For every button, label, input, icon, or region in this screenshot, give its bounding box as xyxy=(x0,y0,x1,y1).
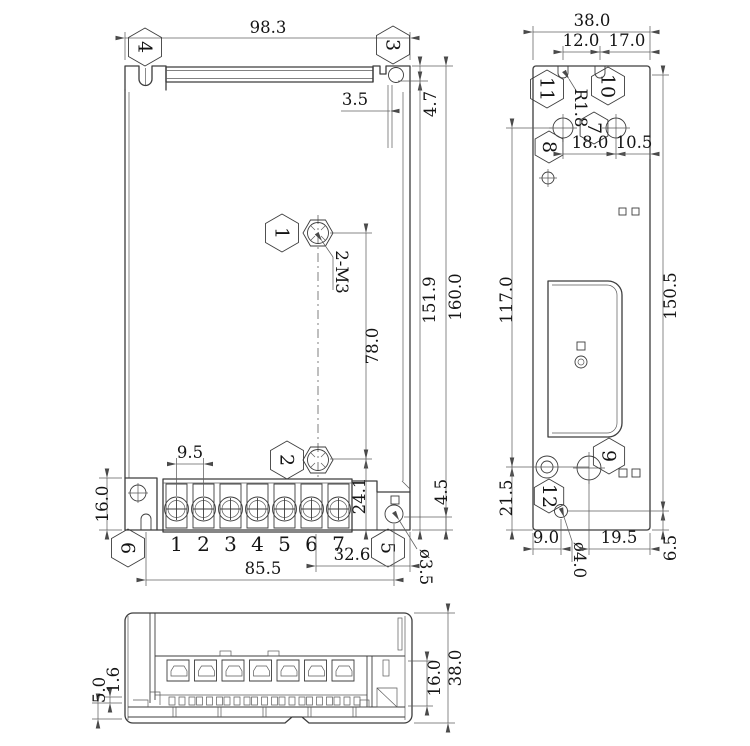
terminal-2: 2 xyxy=(197,532,210,556)
dim-flange-height: 16.0 xyxy=(93,478,122,530)
balloon-9-number: 9 xyxy=(598,450,620,462)
balloon-2-number: 2 xyxy=(276,454,298,466)
dim-text-32-6: 32.6 xyxy=(334,545,371,564)
dim-text-9-5: 9.5 xyxy=(177,443,203,462)
balloon-4-number: 4 xyxy=(134,41,156,53)
dim-text-78: 78.0 xyxy=(363,328,382,365)
dim-text-151-9: 151.9 xyxy=(420,276,439,323)
thread-callout: 2-M3 xyxy=(322,241,351,294)
dim-bottom-span: 24.1 xyxy=(350,459,369,530)
dim-text-24-1: 24.1 xyxy=(350,478,369,515)
dim-text-38: 38.0 xyxy=(574,11,611,30)
dim-text-85-5: 85.5 xyxy=(245,559,282,578)
bottom-view: 1.6 5.0 16.0 38.0 xyxy=(90,613,465,723)
dim-text-6-5: 6.5 xyxy=(661,535,680,561)
dim-text-21-5: 21.5 xyxy=(497,480,516,517)
dim-text-4-5: 4.5 xyxy=(432,479,451,505)
bottom-terminal-strip xyxy=(167,660,354,681)
balloon-6-number: 6 xyxy=(117,542,139,554)
dim-text-16: 16.0 xyxy=(93,486,112,523)
dim-text-117: 117.0 xyxy=(497,276,516,323)
vent-square xyxy=(619,208,626,215)
dim-hole-bottom: 4.5 xyxy=(404,479,452,530)
bottom-base-details xyxy=(128,692,405,717)
balloon-11-number: 11 xyxy=(536,77,558,101)
balloon-6: 6 xyxy=(112,529,145,567)
balloon-10-number: 10 xyxy=(597,74,619,98)
balloon-4: 4 xyxy=(129,28,162,66)
dim-text-3-5: 3.5 xyxy=(342,90,368,109)
label-dia-3-5: ø3.5 xyxy=(416,549,435,585)
balloon-10: 10 xyxy=(592,67,625,105)
side-view: 38.0 12.0 17.0 R1.8 11 10 xyxy=(497,11,680,578)
terminal-1: 1 xyxy=(170,532,183,556)
dim-side-left: 117.0 21.5 xyxy=(497,128,552,530)
balloon-3: 3 xyxy=(377,26,410,64)
dim-text-160: 160.0 xyxy=(446,273,465,320)
dim-bottom-left: 1.6 5.0 xyxy=(90,667,123,719)
terminal-3: 3 xyxy=(224,532,237,556)
dim-text-98-3: 98.3 xyxy=(250,18,287,37)
dim-text-38-depth: 38.0 xyxy=(446,650,465,687)
dim-front-width: 98.3 xyxy=(125,18,410,60)
terminal-5: 5 xyxy=(278,532,291,556)
balloon-5-number: 5 xyxy=(377,542,399,554)
terminal-4: 4 xyxy=(251,532,264,556)
dimension-drawing: 98.3 4 3 3.5 xyxy=(0,0,750,746)
dim-text-10-5: 10.5 xyxy=(616,133,653,152)
balloon-1: 1 xyxy=(266,214,299,252)
dim-text-4-7: 4.7 xyxy=(421,91,440,117)
bottom-right-latch xyxy=(360,656,397,707)
balloon-12: 12 xyxy=(534,479,563,513)
balloon-1-number: 1 xyxy=(271,227,293,239)
dim-right-chain: 4.7 151.9 160.0 xyxy=(398,66,465,530)
dim-text-150-5: 150.5 xyxy=(661,272,680,319)
balloon-12-number: 12 xyxy=(538,484,560,508)
terminal-block: 1 2 3 4 5 6 7 xyxy=(163,479,352,556)
side-hole-dia-callout: ø4.0 xyxy=(564,517,589,578)
side-cutout xyxy=(548,281,622,437)
engineering-drawing-sheet: 98.3 4 3 3.5 xyxy=(0,0,750,746)
balloon-8: 8 xyxy=(535,131,563,163)
vent-square xyxy=(632,208,639,215)
balloon-2: 2 xyxy=(271,441,304,479)
dim-side-width: 38.0 12.0 17.0 xyxy=(533,11,650,60)
dim-text-19-5: 19.5 xyxy=(601,528,638,547)
terminal-numbers: 1 2 3 4 5 6 7 xyxy=(170,532,345,556)
dim-text-17: 17.0 xyxy=(609,31,646,50)
dim-bottom-right: 16.0 38.0 xyxy=(408,613,465,723)
dim-text-9: 9.0 xyxy=(533,528,559,547)
front-body-outline xyxy=(125,66,410,530)
dim-text-12: 12.0 xyxy=(563,31,600,50)
dim-terminal-pitch: 9.5 xyxy=(177,443,204,496)
dim-text-16-depth: 16.0 xyxy=(425,660,444,697)
dim-side-holes: 18.0 10.5 xyxy=(563,133,652,159)
balloon-3-number: 3 xyxy=(382,39,404,51)
balloon-8-number: 8 xyxy=(538,141,560,153)
balloon-5: 5 xyxy=(372,529,405,567)
radius-callout: R1.8 xyxy=(569,79,590,127)
label-dia-4: ø4.0 xyxy=(570,542,589,578)
terminal-screws xyxy=(165,497,351,521)
front-left-flange xyxy=(125,478,157,530)
dim-text-18: 18.0 xyxy=(572,133,609,152)
label-2-m3: 2-M3 xyxy=(332,250,351,293)
dim-text-5: 5.0 xyxy=(90,677,109,703)
dim-hole-offset: 3.5 xyxy=(341,90,390,111)
front-view: 98.3 4 3 3.5 xyxy=(93,18,465,586)
